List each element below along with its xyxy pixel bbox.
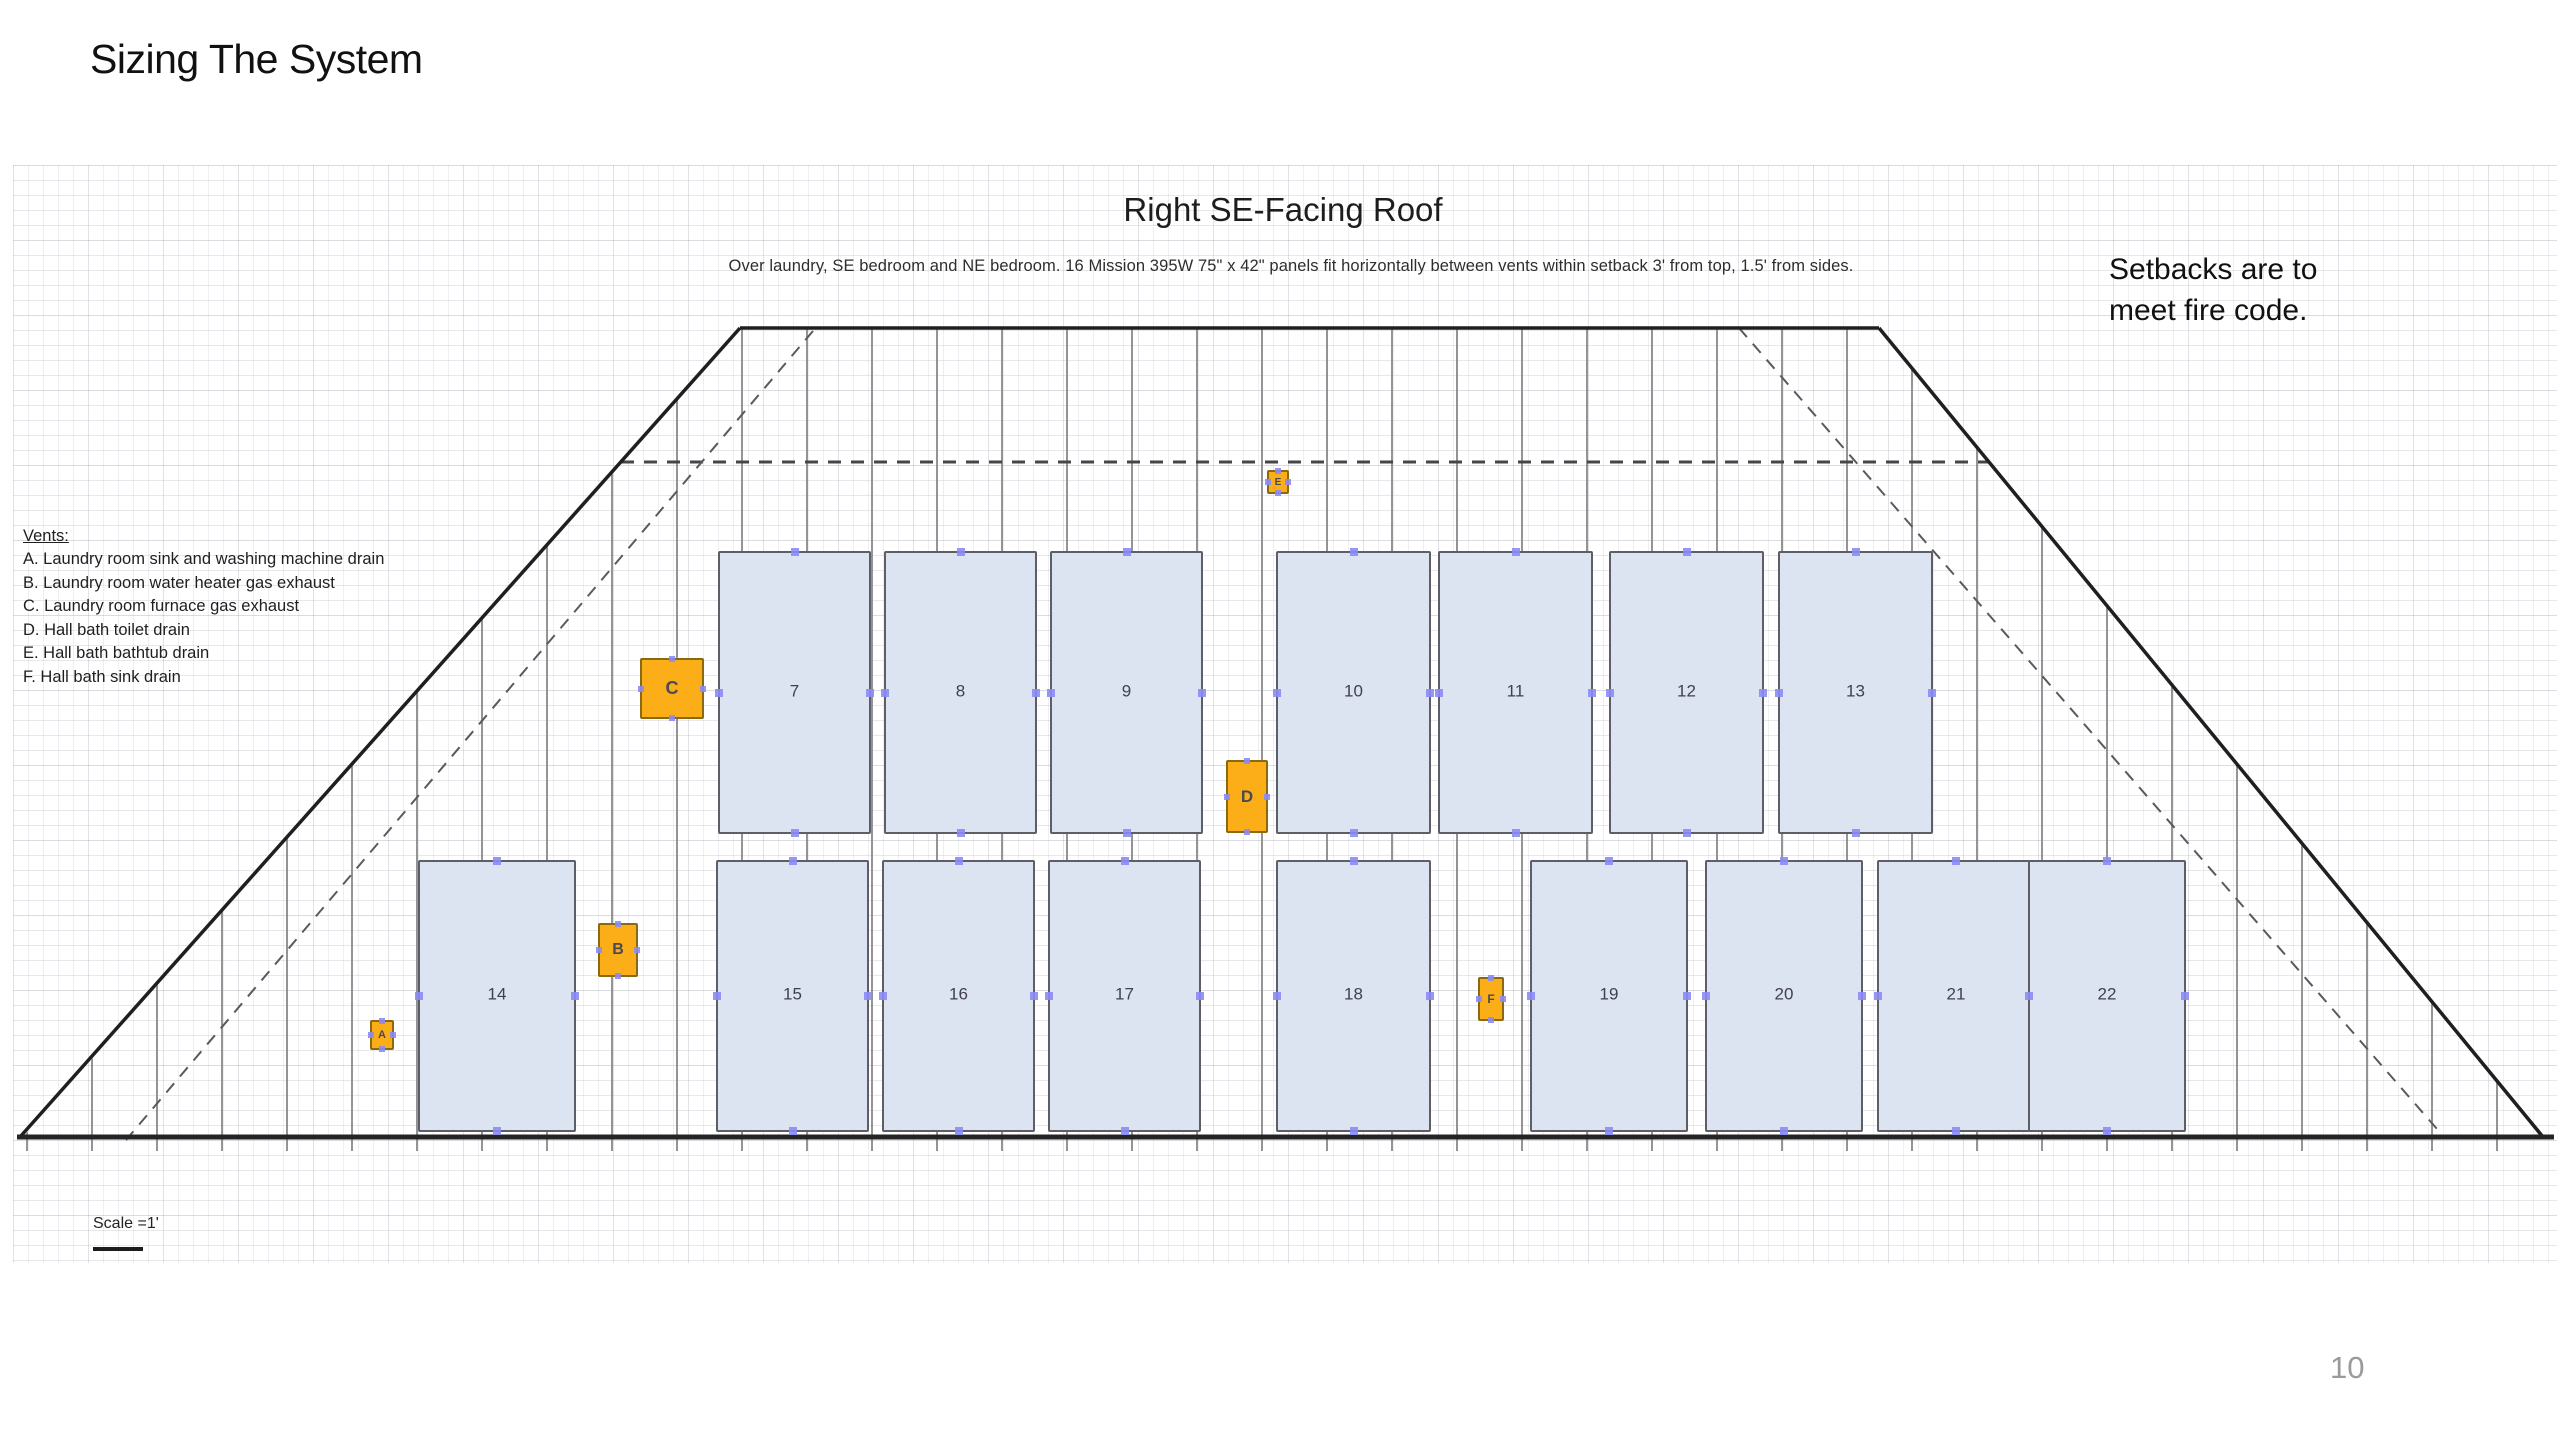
- vent-marker-c[interactable]: C: [640, 658, 704, 719]
- selection-handle[interactable]: [1275, 490, 1281, 496]
- panel-number: 11: [1440, 681, 1591, 701]
- selection-handle[interactable]: [1952, 857, 1960, 865]
- selection-handle[interactable]: [789, 1127, 797, 1135]
- selection-handle[interactable]: [1874, 992, 1882, 1000]
- vents-legend-item: C. Laundry room furnace gas exhaust: [23, 595, 384, 618]
- selection-handle[interactable]: [1702, 992, 1710, 1000]
- selection-handle[interactable]: [1488, 975, 1494, 981]
- selection-handle[interactable]: [1350, 548, 1358, 556]
- selection-handle[interactable]: [1426, 689, 1434, 697]
- panel-number: 17: [1050, 984, 1199, 1004]
- solar-panel-18[interactable]: 18: [1276, 860, 1431, 1132]
- selection-handle[interactable]: [1047, 689, 1055, 697]
- solar-panel-16[interactable]: 16: [882, 860, 1035, 1132]
- selection-handle[interactable]: [1123, 829, 1131, 837]
- selection-handle[interactable]: [713, 992, 721, 1000]
- selection-handle[interactable]: [368, 1032, 374, 1038]
- vents-legend-item: B. Laundry room water heater gas exhaust: [23, 572, 384, 595]
- selection-handle[interactable]: [1350, 1127, 1358, 1135]
- solar-panel-21[interactable]: 21: [1877, 860, 2035, 1132]
- panel-number: 20: [1707, 984, 1861, 1004]
- selection-handle[interactable]: [955, 1127, 963, 1135]
- panel-number: 15: [718, 984, 867, 1004]
- solar-panel-15[interactable]: 15: [716, 860, 869, 1132]
- selection-handle[interactable]: [1605, 1127, 1613, 1135]
- selection-handle[interactable]: [1435, 689, 1443, 697]
- vents-legend-item: F. Hall bath sink drain: [23, 666, 384, 689]
- selection-handle[interactable]: [791, 829, 799, 837]
- selection-handle[interactable]: [2103, 1127, 2111, 1135]
- selection-handle[interactable]: [571, 992, 579, 1000]
- solar-panel-17[interactable]: 17: [1048, 860, 1201, 1132]
- vents-legend-item: A. Laundry room sink and washing machine…: [23, 548, 384, 571]
- vent-marker-d[interactable]: D: [1226, 760, 1268, 833]
- selection-handle[interactable]: [2103, 857, 2111, 865]
- selection-handle[interactable]: [881, 689, 889, 697]
- solar-panel-19[interactable]: 19: [1530, 860, 1688, 1132]
- solar-panel-7[interactable]: 7: [718, 551, 871, 834]
- solar-panel-14[interactable]: 14: [418, 860, 576, 1132]
- vents-legend-item: D. Hall bath toilet drain: [23, 619, 384, 642]
- solar-panel-13[interactable]: 13: [1778, 551, 1933, 834]
- selection-handle[interactable]: [1244, 829, 1250, 835]
- setback-note: Setbacks are to meet fire code.: [2109, 249, 2317, 331]
- solar-panel-20[interactable]: 20: [1705, 860, 1863, 1132]
- selection-handle[interactable]: [634, 947, 640, 953]
- panel-number: 16: [884, 984, 1033, 1004]
- selection-handle[interactable]: [957, 548, 965, 556]
- selection-handle[interactable]: [864, 992, 872, 1000]
- selection-handle[interactable]: [1224, 794, 1230, 800]
- solar-panel-8[interactable]: 8: [884, 551, 1037, 834]
- selection-handle[interactable]: [1264, 794, 1270, 800]
- vent-marker-f[interactable]: F: [1478, 977, 1504, 1021]
- panel-number: 21: [1879, 984, 2033, 1004]
- selection-handle[interactable]: [1476, 996, 1482, 1002]
- selection-handle[interactable]: [1196, 992, 1204, 1000]
- selection-handle[interactable]: [1683, 829, 1691, 837]
- solar-panel-22[interactable]: 22: [2028, 860, 2186, 1132]
- selection-handle[interactable]: [1605, 857, 1613, 865]
- selection-handle[interactable]: [638, 686, 644, 692]
- selection-handle[interactable]: [1285, 479, 1291, 485]
- scale-bar: [93, 1247, 143, 1251]
- solar-panel-9[interactable]: 9: [1050, 551, 1203, 834]
- vent-letter: D: [1241, 787, 1253, 807]
- vents-legend-item: E. Hall bath bathtub drain: [23, 642, 384, 665]
- panel-number: 13: [1780, 681, 1931, 701]
- selection-handle[interactable]: [1123, 548, 1131, 556]
- selection-handle[interactable]: [1350, 829, 1358, 837]
- vent-marker-b[interactable]: B: [598, 923, 638, 977]
- panel-number: 22: [2030, 984, 2184, 1004]
- selection-handle[interactable]: [1198, 689, 1206, 697]
- vent-letter: E: [1275, 477, 1282, 488]
- selection-handle[interactable]: [1606, 689, 1614, 697]
- vent-letter: B: [612, 941, 624, 959]
- page-title: Sizing The System: [90, 36, 423, 83]
- selection-handle[interactable]: [789, 857, 797, 865]
- selection-handle[interactable]: [1512, 548, 1520, 556]
- selection-handle[interactable]: [1121, 1127, 1129, 1135]
- vents-legend: Vents: A. Laundry room sink and washing …: [23, 525, 384, 689]
- selection-handle[interactable]: [1527, 992, 1535, 1000]
- panel-number: 14: [420, 984, 574, 1004]
- vents-legend-heading: Vents:: [23, 525, 384, 548]
- selection-handle[interactable]: [1952, 1127, 1960, 1135]
- vent-marker-a[interactable]: A: [370, 1020, 394, 1050]
- vents-legend-items: A. Laundry room sink and washing machine…: [23, 548, 384, 689]
- graph-paper: Right SE-Facing Roof Over laundry, SE be…: [13, 165, 2557, 1263]
- selection-handle[interactable]: [1683, 992, 1691, 1000]
- selection-handle[interactable]: [957, 829, 965, 837]
- vent-letter: A: [378, 1029, 386, 1041]
- selection-handle[interactable]: [1683, 548, 1691, 556]
- page-number: 10: [2330, 1350, 2364, 1386]
- selection-handle[interactable]: [1275, 468, 1281, 474]
- selection-handle[interactable]: [615, 921, 621, 927]
- selection-handle[interactable]: [1045, 992, 1053, 1000]
- selection-handle[interactable]: [2181, 992, 2189, 1000]
- selection-handle[interactable]: [415, 992, 423, 1000]
- selection-handle[interactable]: [1350, 857, 1358, 865]
- vent-letter: C: [666, 678, 679, 699]
- panel-number: 10: [1278, 681, 1429, 701]
- selection-handle[interactable]: [669, 656, 675, 662]
- selection-handle[interactable]: [669, 715, 675, 721]
- selection-handle[interactable]: [596, 947, 602, 953]
- selection-handle[interactable]: [1928, 689, 1936, 697]
- selection-handle[interactable]: [615, 973, 621, 979]
- solar-panel-11[interactable]: 11: [1438, 551, 1593, 834]
- selection-handle[interactable]: [1759, 689, 1767, 697]
- selection-handle[interactable]: [493, 857, 501, 865]
- selection-handle[interactable]: [1858, 992, 1866, 1000]
- selection-handle[interactable]: [493, 1127, 501, 1135]
- panel-number: 12: [1611, 681, 1762, 701]
- panel-number: 8: [886, 681, 1035, 701]
- selection-handle[interactable]: [1032, 689, 1040, 697]
- slide: Sizing The System Right SE-Facing Roof O…: [0, 0, 2560, 1440]
- selection-handle[interactable]: [1273, 992, 1281, 1000]
- vent-marker-e[interactable]: E: [1267, 470, 1289, 494]
- selection-handle[interactable]: [1030, 992, 1038, 1000]
- selection-handle[interactable]: [866, 689, 874, 697]
- selection-handle[interactable]: [715, 689, 723, 697]
- solar-panel-10[interactable]: 10: [1276, 551, 1431, 834]
- roof-subtitle: Over laundry, SE bedroom and NE bedroom.…: [729, 257, 1854, 276]
- selection-handle[interactable]: [1512, 829, 1520, 837]
- selection-handle[interactable]: [1244, 758, 1250, 764]
- panel-number: 7: [720, 681, 869, 701]
- selection-handle[interactable]: [879, 992, 887, 1000]
- solar-panel-12[interactable]: 12: [1609, 551, 1764, 834]
- panel-number: 9: [1052, 681, 1201, 701]
- selection-handle[interactable]: [2025, 992, 2033, 1000]
- selection-handle[interactable]: [1780, 857, 1788, 865]
- selection-handle[interactable]: [1852, 829, 1860, 837]
- selection-handle[interactable]: [390, 1032, 396, 1038]
- roof-title: Right SE-Facing Roof: [1123, 191, 1442, 229]
- scale-label: Scale =1': [93, 1215, 159, 1233]
- panel-number: 19: [1532, 984, 1686, 1004]
- selection-handle[interactable]: [1273, 689, 1281, 697]
- selection-handle[interactable]: [379, 1018, 385, 1024]
- selection-handle[interactable]: [1121, 857, 1129, 865]
- selection-handle[interactable]: [955, 857, 963, 865]
- selection-handle[interactable]: [1500, 996, 1506, 1002]
- selection-handle[interactable]: [700, 686, 706, 692]
- selection-handle[interactable]: [1852, 548, 1860, 556]
- selection-handle[interactable]: [1426, 992, 1434, 1000]
- selection-handle[interactable]: [1488, 1017, 1494, 1023]
- panel-number: 18: [1278, 984, 1429, 1004]
- selection-handle[interactable]: [791, 548, 799, 556]
- selection-handle[interactable]: [379, 1046, 385, 1052]
- selection-handle[interactable]: [1780, 1127, 1788, 1135]
- roof-hip-left: [20, 328, 740, 1137]
- selection-handle[interactable]: [1588, 689, 1596, 697]
- selection-handle[interactable]: [1775, 689, 1783, 697]
- selection-handle[interactable]: [1265, 479, 1271, 485]
- vent-letter: F: [1487, 992, 1494, 1006]
